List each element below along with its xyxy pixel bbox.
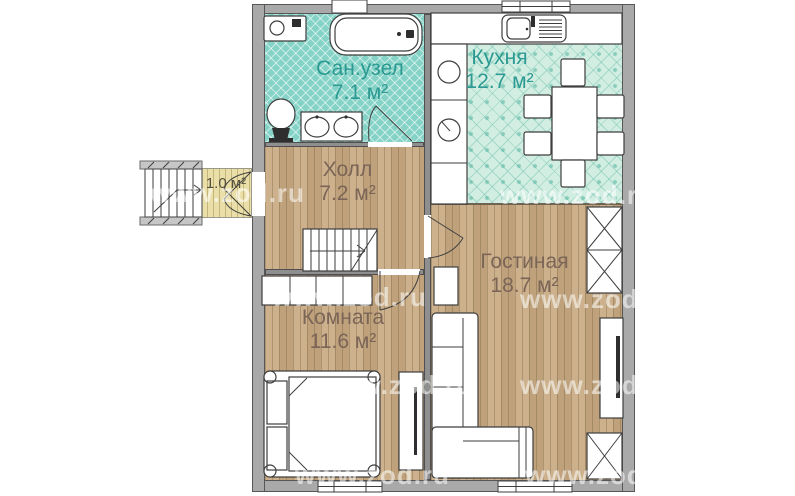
- kitchen-living-separator: [431, 203, 622, 205]
- bedroom-label: Комната 11.6 м²: [283, 306, 403, 354]
- living-room-floor: [431, 204, 622, 480]
- floor-plan: Сан.узел 7.1 м² Кухня 12.7 м² Холл 7.2 м…: [0, 0, 795, 496]
- hall-label: Холл 7.2 м²: [300, 158, 395, 206]
- bathroom-area: 7.1 м²: [300, 81, 420, 105]
- hall-name: Холл: [300, 158, 395, 182]
- living-label: Гостиная 18.7 м²: [462, 250, 587, 298]
- outer-wall-left: [252, 4, 265, 492]
- bathroom-label: Сан.узел 7.1 м²: [300, 57, 420, 105]
- entrance-stairs-icon: [140, 161, 202, 225]
- bathroom-name: Сан.узел: [300, 57, 420, 81]
- hall-area: 7.2 м²: [300, 182, 395, 206]
- living-name: Гостиная: [462, 250, 587, 274]
- bedroom-door-opening: [378, 269, 420, 275]
- living-room-door-opening: [424, 215, 431, 258]
- outer-wall-right: [622, 4, 635, 492]
- kitchen-area: 12.7 м²: [452, 70, 547, 94]
- outer-wall-top: [252, 4, 635, 14]
- living-area: 18.7 м²: [462, 274, 587, 298]
- kitchen-name: Кухня: [452, 46, 547, 70]
- bedroom-name: Комната: [283, 306, 403, 330]
- bedroom-area: 11.6 м²: [283, 330, 403, 354]
- kitchen-label: Кухня 12.7 м²: [452, 46, 547, 94]
- watermark: www.zod.ru: [680, 34, 795, 65]
- bathroom-door-opening: [368, 142, 412, 147]
- porch-label: 1.0 м²: [198, 175, 254, 192]
- porch-area: 1.0 м²: [198, 175, 254, 192]
- kitchen-floor: [431, 14, 622, 204]
- outer-wall-bottom: [252, 480, 635, 492]
